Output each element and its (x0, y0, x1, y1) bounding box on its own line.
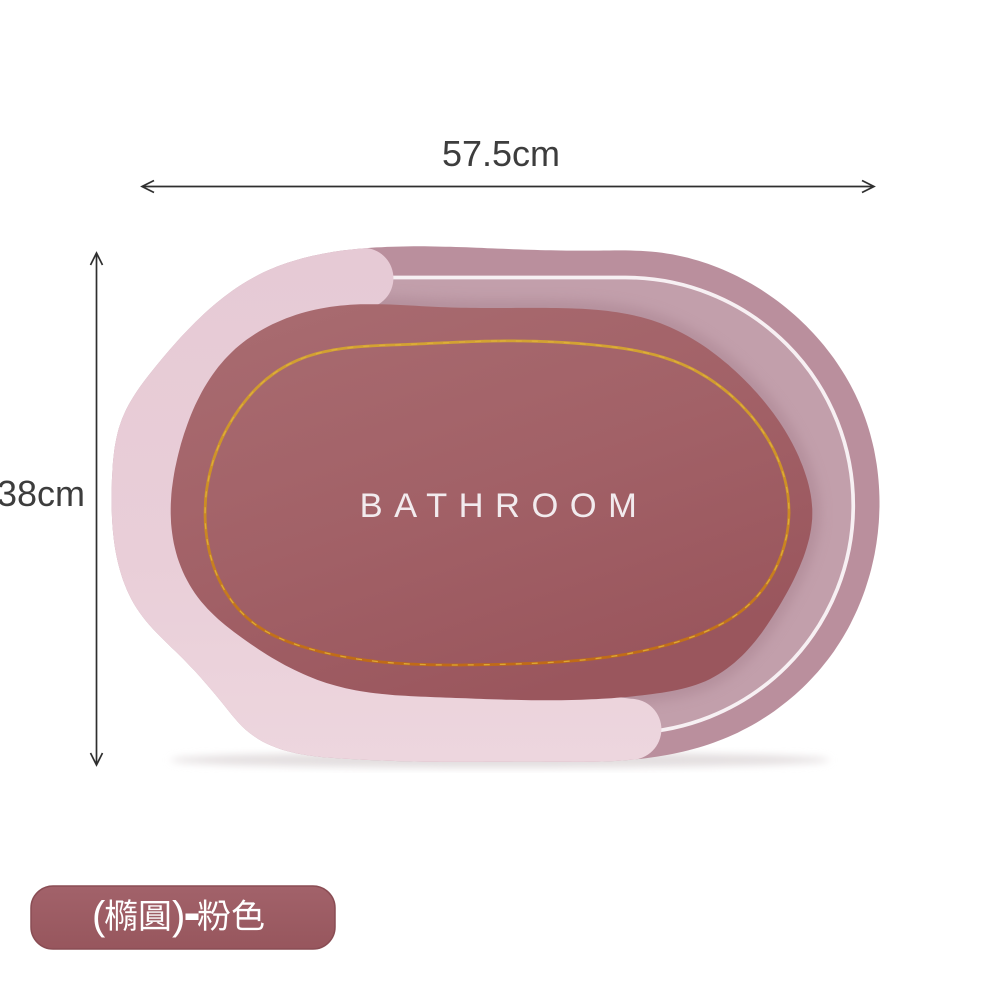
svg-text:38cm: 38cm (0, 473, 85, 514)
svg-text:BATHROOM: BATHROOM (360, 487, 649, 525)
svg-text:(: ( (92, 894, 106, 938)
svg-text:): ) (172, 894, 185, 938)
svg-text:57.5cm: 57.5cm (442, 133, 560, 174)
